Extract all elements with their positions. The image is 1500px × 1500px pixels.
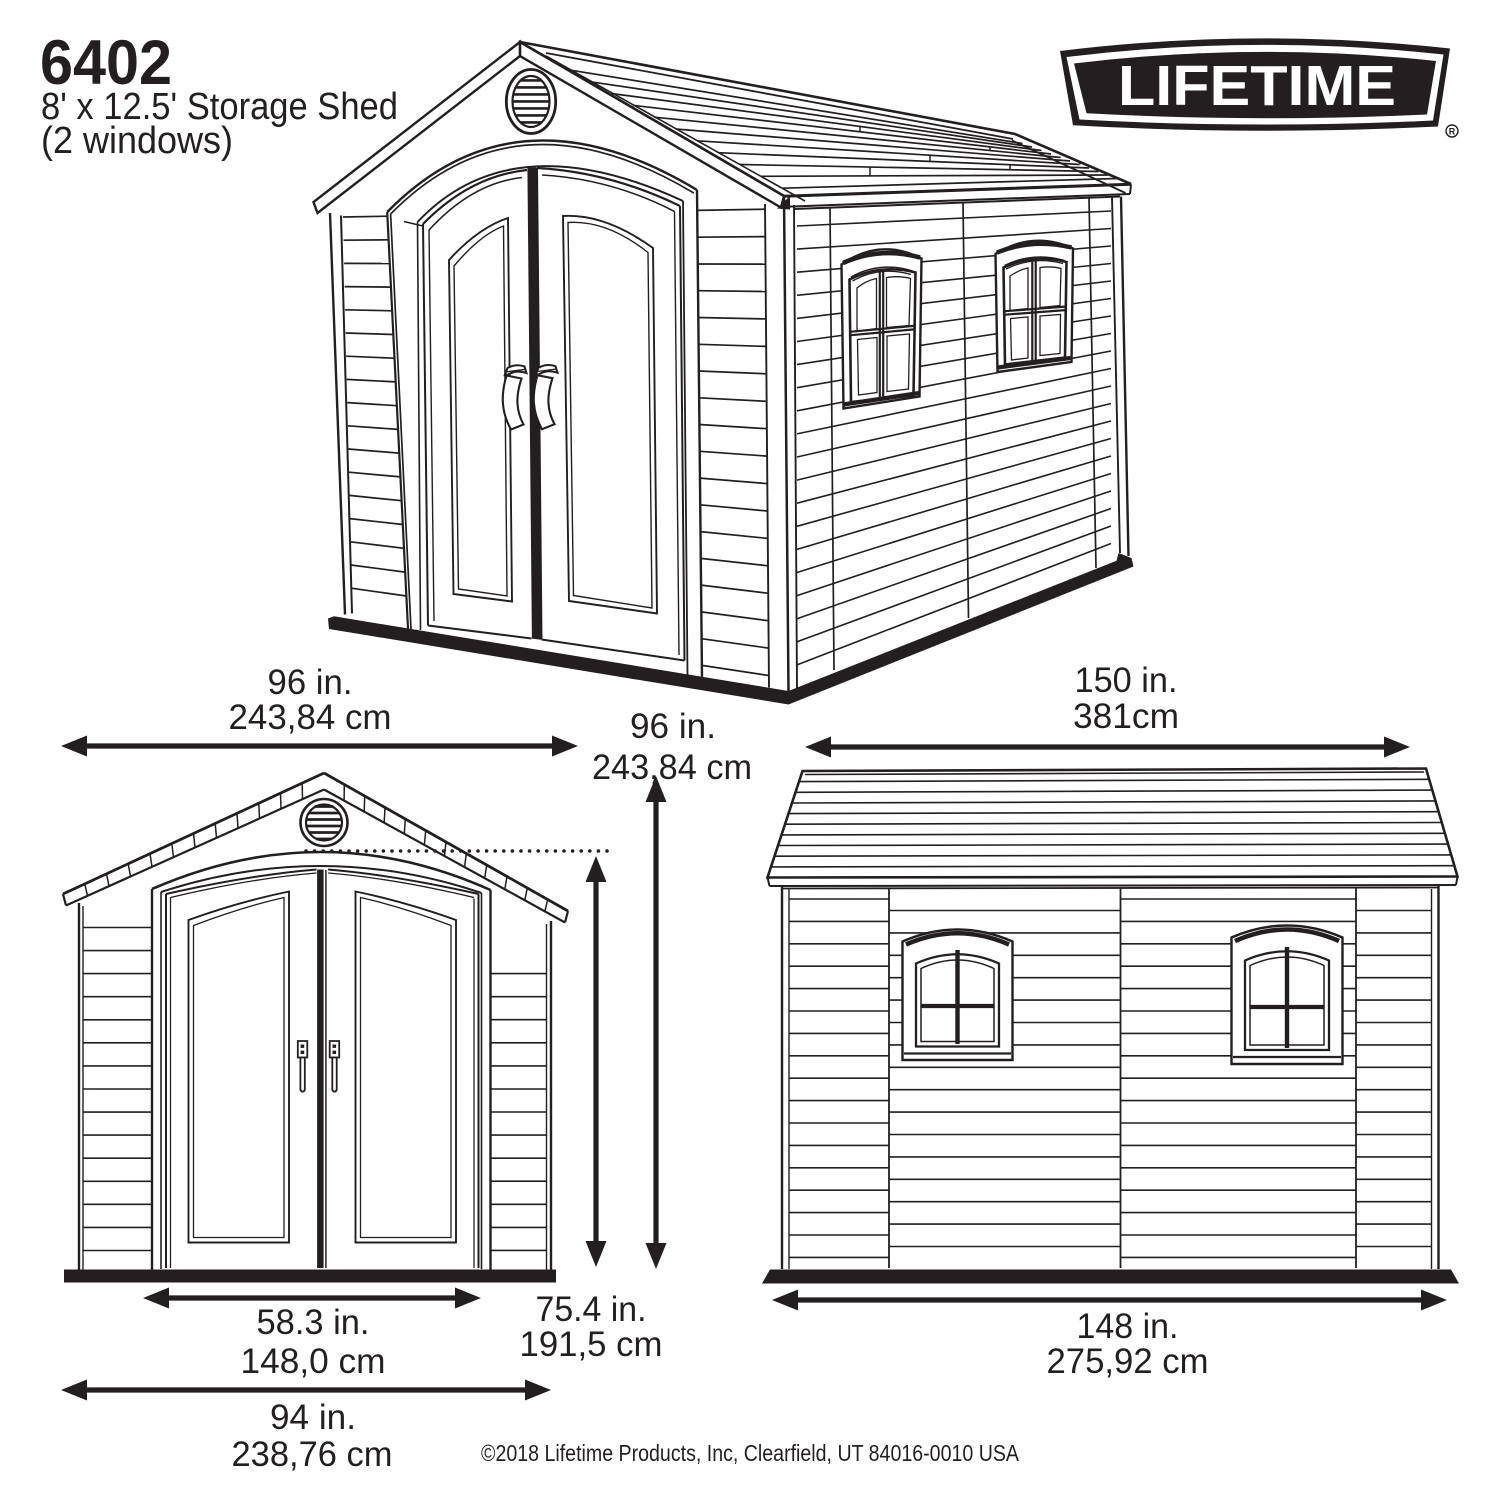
svg-text:R: R — [1449, 127, 1456, 137]
svg-text:243,84 cm: 243,84 cm — [229, 698, 392, 737]
svg-text:58.3 in.: 58.3 in. — [257, 1303, 370, 1342]
svg-text:(2 windows): (2 windows) — [41, 120, 233, 162]
svg-text:LIFETIME: LIFETIME — [1118, 54, 1396, 118]
svg-text:©2018 Lifetime Products, Inc,: ©2018 Lifetime Products, Inc, Clearfield… — [481, 1440, 1019, 1466]
svg-text:150 in.: 150 in. — [1075, 661, 1178, 700]
svg-text:381cm: 381cm — [1073, 697, 1179, 736]
svg-text:238,76 cm: 238,76 cm — [232, 1435, 393, 1474]
svg-text:75.4 in.: 75.4 in. — [536, 1290, 647, 1329]
svg-text:96 in.: 96 in. — [268, 663, 353, 702]
svg-text:148 in.: 148 in. — [1077, 1307, 1179, 1346]
svg-text:94 in.: 94 in. — [270, 1398, 356, 1437]
svg-text:191,5 cm: 191,5 cm — [520, 1325, 663, 1364]
svg-text:275,92 cm: 275,92 cm — [1047, 1342, 1209, 1381]
svg-text:96 in.: 96 in. — [630, 707, 716, 746]
svg-text:148,0 cm: 148,0 cm — [241, 1342, 386, 1381]
svg-text:243,84 cm: 243,84 cm — [592, 748, 752, 787]
